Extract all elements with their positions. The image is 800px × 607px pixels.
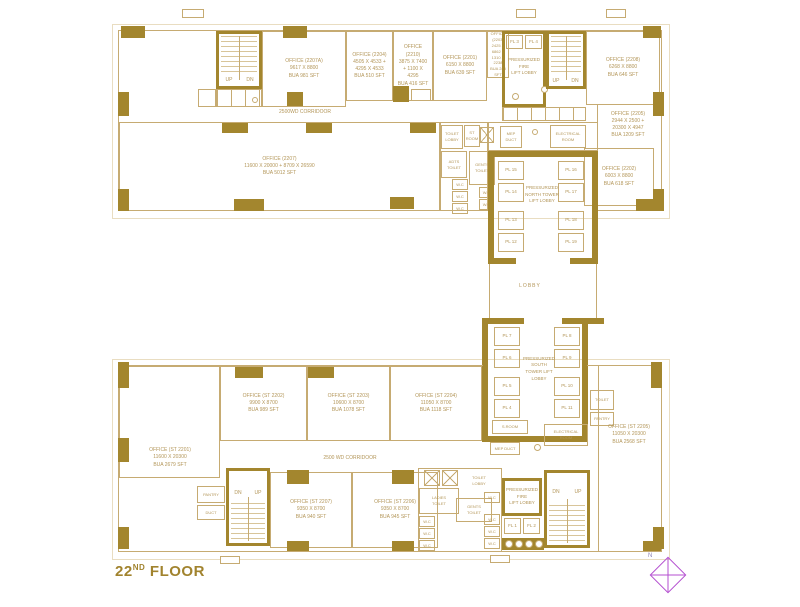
liftbank-north-wall-top [488, 151, 598, 157]
mep-duct-north: MEP DUCT [500, 126, 522, 148]
column [410, 123, 436, 133]
lift-pl11: PL 11 [554, 399, 580, 418]
lift-pl16: PL 16 [558, 161, 584, 180]
wc-cubicle: W.C [452, 191, 468, 202]
column [118, 438, 129, 462]
stair-ne-dn-label: DN [567, 78, 583, 86]
stair-se-dn-label: DN [548, 489, 564, 497]
lobby-label: LOBBY [500, 282, 560, 292]
toilet-lobby-north: TOILET LOBBY [441, 125, 463, 149]
column [118, 362, 129, 388]
column [392, 541, 414, 551]
south-wall-right [661, 365, 662, 552]
fire-lift-2: FL 2 [523, 518, 540, 534]
fire-lift-lobby-north-label: PRESSURIZED FIRE LIFT LOBBY [503, 53, 545, 81]
column [308, 367, 334, 378]
floor-number: 22 [115, 563, 133, 580]
lift-pl18: PL 18 [558, 211, 584, 230]
stair-sw-up-label: UP [250, 490, 266, 498]
office-st2204: OFFICE (ST 2204) 11050 X 8700 BUA 1118 S… [390, 366, 482, 441]
floor-title: 22ND FLOOR [115, 563, 205, 580]
column [222, 123, 248, 133]
fire-lift-1: FL 1 [504, 518, 521, 534]
fire-lift-lobby-south: PRESSURIZED FIRE LIFT LOBBY [502, 478, 542, 516]
wc-fixture [252, 97, 258, 103]
wc-fixture [515, 540, 523, 548]
office-st2201-label: OFFICE (ST 2201) 11600 X 20300 BUA 2679 … [130, 444, 210, 472]
stair-nw-up-label: UP [220, 77, 238, 85]
ladies-toilet: LADIES TOILET [419, 488, 459, 514]
annotation-box [411, 89, 431, 101]
column [287, 541, 309, 551]
electrical-room-north: ELECTRICAL ROOM [550, 125, 586, 148]
column [636, 199, 654, 211]
duct-wall-block [393, 86, 409, 102]
north-label: N [648, 553, 652, 559]
stair-spine [566, 36, 567, 80]
shaft-duct [480, 127, 494, 143]
wc-fixture [535, 540, 543, 548]
wc-cubicle: W.C [419, 540, 435, 551]
north-arrow-icon [650, 557, 687, 594]
column [234, 199, 264, 211]
floor-word: FLOOR [145, 563, 205, 580]
lift-pl5: PL 5 [494, 377, 520, 396]
liftbank-north-wall-left [488, 157, 494, 261]
stair-se-up-label: UP [570, 489, 586, 497]
column [651, 362, 662, 388]
corridor-north-label: 2500WD CORRIDOOR [250, 108, 360, 117]
s-room-south: S.ROOM [492, 420, 528, 434]
wc-cubicle: W.C [452, 179, 468, 190]
lift-pl15: PL 15 [498, 161, 524, 180]
washroom-ne-cubicles [502, 107, 586, 121]
wc-cubicle: W.C [484, 526, 500, 537]
lobby-column [482, 318, 524, 324]
column [643, 26, 661, 38]
office-2205-label: OFFICE (2205) 2944 X 2500 + 20300 X 4947… [598, 106, 658, 144]
dimension-tag [516, 9, 536, 18]
floor-suffix: ND [133, 563, 146, 572]
office-2204: OFFICE (2204) 4505 X 4533 + 4295 X 4533 … [346, 31, 393, 101]
lift-pl10: PL 10 [554, 377, 580, 396]
stair-southwest [226, 468, 270, 546]
office-st2205-wall [598, 366, 599, 551]
column [235, 367, 263, 378]
toilet-lobby-south: TOILET LOBBY [460, 472, 498, 490]
stair-spine [239, 36, 240, 80]
column [118, 527, 129, 549]
column [287, 92, 303, 106]
wc-cubicle: W.C [419, 516, 435, 527]
wc-cubicle: W.C [484, 492, 500, 503]
lift-pl8: PL 8 [554, 327, 580, 346]
st-room-north: ST ROOM [464, 125, 480, 147]
lift-pl7: PL 7 [494, 327, 520, 346]
lift-pl12: PL 12 [498, 233, 524, 252]
north-tower-lift-lobby-label: PRESSURIZED NORTH TOWER LIFT LOBBY [524, 177, 560, 213]
south-wall-bottom [118, 551, 662, 552]
corridor-south-label: 2500 WD CORRIDOOR [305, 454, 395, 463]
electrical-room-south: ELECTRICAL ROOM [544, 424, 588, 446]
liftbank-south-wall-right [582, 324, 588, 438]
wc-fixture [512, 93, 519, 100]
stair-sw-dn-label: DN [230, 490, 246, 498]
column [392, 470, 414, 484]
column [643, 541, 661, 551]
column [121, 26, 145, 38]
north-wall-right [661, 30, 662, 211]
lift-pl17: PL 17 [558, 183, 584, 202]
adts-toilet: ADTS TOILET [441, 151, 467, 178]
column [306, 123, 332, 133]
lobby-column [488, 258, 516, 264]
pantry-southwest: PANTRY [197, 486, 225, 503]
washroom-nw-left [198, 89, 216, 107]
floor-drain [532, 129, 538, 135]
stair-ne-up-label: UP [548, 78, 564, 86]
stair-spine [248, 497, 249, 541]
duct-southwest: DUCT [197, 505, 225, 520]
stair-southeast [544, 470, 590, 548]
lift-pl14: PL 14 [498, 183, 524, 202]
toilet-right: TOILET [590, 390, 614, 410]
column [283, 26, 307, 38]
stair-spine [567, 499, 568, 543]
fire-lift-3: FL 3 [506, 35, 523, 49]
floor-drain [534, 444, 541, 451]
lift-pl6: PL 6 [494, 349, 520, 368]
wc-cubicle: W.C [484, 514, 500, 525]
wc-cubicle: W.C [419, 528, 435, 539]
liftbank-south-wall-left [482, 324, 488, 438]
wc-fixture [525, 540, 533, 548]
wc-cubicle: W.C [452, 203, 468, 214]
office-st2207: OFFICE (ST 2207) 9350 X 8700 BUA 940 SFT [270, 472, 352, 548]
lobby-wall-left [489, 261, 490, 323]
mep-duct-south: MEP DUCT [490, 442, 520, 455]
office-2208: OFFICE (2208) 6268 X 8800 BUA 646 SFT [586, 31, 660, 105]
column [390, 197, 414, 209]
lobby-column [570, 258, 598, 264]
column [287, 470, 309, 484]
wc-cubicle: W.C [484, 538, 500, 549]
office-2207a: OFFICE (2207A) 9617 X 8800 BUA 981 SFT [262, 31, 346, 107]
lobby-wall-right [596, 261, 597, 323]
dimension-tag [606, 9, 626, 18]
liftbank-north-wall-right [592, 157, 598, 261]
column [653, 189, 664, 211]
lift-pl13: PL 13 [498, 211, 524, 230]
column [118, 189, 129, 211]
stair-nw-dn-label: DN [241, 77, 259, 85]
lift-pl9: PL 9 [554, 349, 580, 368]
shaft-duct [424, 470, 440, 486]
column [653, 92, 664, 116]
lift-pl4: PL 4 [494, 399, 520, 418]
wc-fixture [505, 540, 513, 548]
shaft-duct [442, 470, 458, 486]
office-2201: OFFICE (2201) 6150 X 8800 BUA 639 SFT [433, 31, 487, 101]
dimension-tag [182, 9, 204, 18]
office-st2202: OFFICE (ST 2202) 9900 X 8700 BUA 989 SFT [220, 366, 307, 441]
dimension-tag [220, 556, 240, 564]
lift-pl19: PL 19 [558, 233, 584, 252]
fire-lift-4: FL 4 [525, 35, 542, 49]
dimension-tag [490, 555, 510, 563]
south-tower-lift-lobby-label: PRESSURIZED SOUTH TOWER LIFT LOBBY [522, 346, 556, 392]
office-st2205-label: OFFICE (ST 2205) 11050 X 20300 BUA 2568 … [600, 418, 658, 452]
floor-plan-canvas: UP DN OFFICE (2207A) 9617 X 8800 BUA 981… [0, 0, 800, 607]
column [118, 92, 129, 116]
